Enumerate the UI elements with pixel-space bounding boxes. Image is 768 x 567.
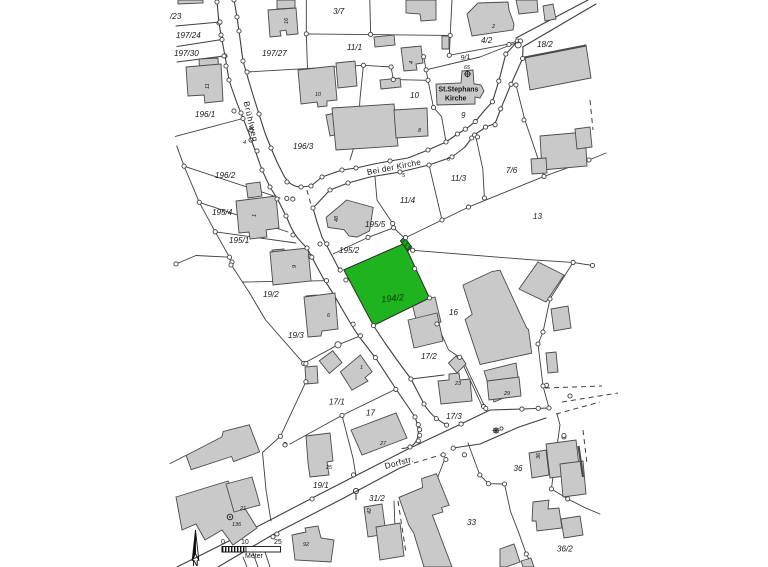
svg-text:11/3: 11/3 bbox=[451, 174, 467, 183]
svg-text:196/3: 196/3 bbox=[293, 142, 314, 151]
svg-text:11: 11 bbox=[205, 83, 211, 89]
svg-text:1: 1 bbox=[360, 365, 363, 371]
svg-text:197/24: 197/24 bbox=[176, 31, 201, 40]
svg-text:17/1: 17/1 bbox=[329, 398, 345, 407]
svg-text:31/2: 31/2 bbox=[369, 494, 385, 503]
svg-text:4/2: 4/2 bbox=[481, 36, 493, 45]
svg-text:16: 16 bbox=[284, 17, 290, 24]
svg-text:3/7: 3/7 bbox=[333, 7, 345, 16]
svg-text:21: 21 bbox=[239, 506, 246, 512]
svg-text:1: 1 bbox=[252, 214, 258, 217]
svg-text:42: 42 bbox=[367, 508, 373, 514]
svg-text:10: 10 bbox=[241, 539, 249, 546]
svg-text:7/6: 7/6 bbox=[506, 166, 518, 175]
svg-text:0: 0 bbox=[221, 539, 225, 546]
svg-text:Meter: Meter bbox=[245, 553, 264, 560]
svg-text:196/1: 196/1 bbox=[195, 110, 215, 119]
svg-text:N: N bbox=[193, 559, 199, 567]
svg-text:17/3: 17/3 bbox=[446, 412, 462, 421]
svg-text:195/1: 195/1 bbox=[229, 236, 249, 245]
svg-text:9: 9 bbox=[461, 111, 466, 120]
svg-text:4: 4 bbox=[243, 140, 246, 146]
svg-text:33: 33 bbox=[467, 518, 477, 527]
svg-text:92: 92 bbox=[303, 542, 309, 548]
svg-text:23: 23 bbox=[454, 381, 462, 387]
svg-text:65: 65 bbox=[464, 65, 471, 71]
svg-text:/23: /23 bbox=[169, 12, 182, 21]
svg-text:196/2: 196/2 bbox=[215, 171, 236, 180]
svg-text:4: 4 bbox=[409, 61, 415, 64]
svg-text:11/4: 11/4 bbox=[400, 196, 416, 205]
svg-text:136: 136 bbox=[232, 522, 242, 528]
svg-text:St.Stephans: St.Stephans bbox=[439, 87, 479, 94]
svg-text:195/4: 195/4 bbox=[212, 208, 233, 217]
svg-text:27: 27 bbox=[379, 441, 387, 447]
svg-text:11/1: 11/1 bbox=[347, 43, 362, 52]
svg-text:10: 10 bbox=[315, 92, 322, 98]
svg-text:48: 48 bbox=[334, 215, 340, 222]
svg-text:17: 17 bbox=[366, 408, 376, 417]
svg-text:19/3: 19/3 bbox=[288, 331, 304, 340]
svg-text:9: 9 bbox=[292, 265, 298, 268]
svg-text:13: 13 bbox=[533, 212, 543, 221]
svg-text:25: 25 bbox=[325, 465, 333, 471]
svg-text:36: 36 bbox=[536, 452, 542, 459]
svg-text:9/1: 9/1 bbox=[460, 54, 471, 62]
svg-text:16: 16 bbox=[449, 308, 459, 317]
svg-text:36: 36 bbox=[514, 464, 524, 473]
svg-text:2: 2 bbox=[491, 24, 495, 30]
svg-text:10: 10 bbox=[410, 91, 420, 100]
svg-text:17/2: 17/2 bbox=[421, 352, 437, 361]
svg-text:197/30: 197/30 bbox=[174, 49, 199, 58]
svg-text:25: 25 bbox=[274, 539, 282, 546]
svg-text:Kirche: Kirche bbox=[445, 96, 467, 103]
svg-text:197/27: 197/27 bbox=[262, 49, 287, 58]
svg-text:29: 29 bbox=[503, 391, 510, 397]
svg-text:36/2: 36/2 bbox=[557, 545, 573, 554]
svg-text:195/5: 195/5 bbox=[365, 220, 386, 229]
svg-text:18/2: 18/2 bbox=[537, 40, 553, 49]
svg-text:19/1: 19/1 bbox=[313, 481, 329, 490]
svg-text:19/2: 19/2 bbox=[263, 290, 279, 299]
svg-text:195/2: 195/2 bbox=[339, 246, 360, 255]
